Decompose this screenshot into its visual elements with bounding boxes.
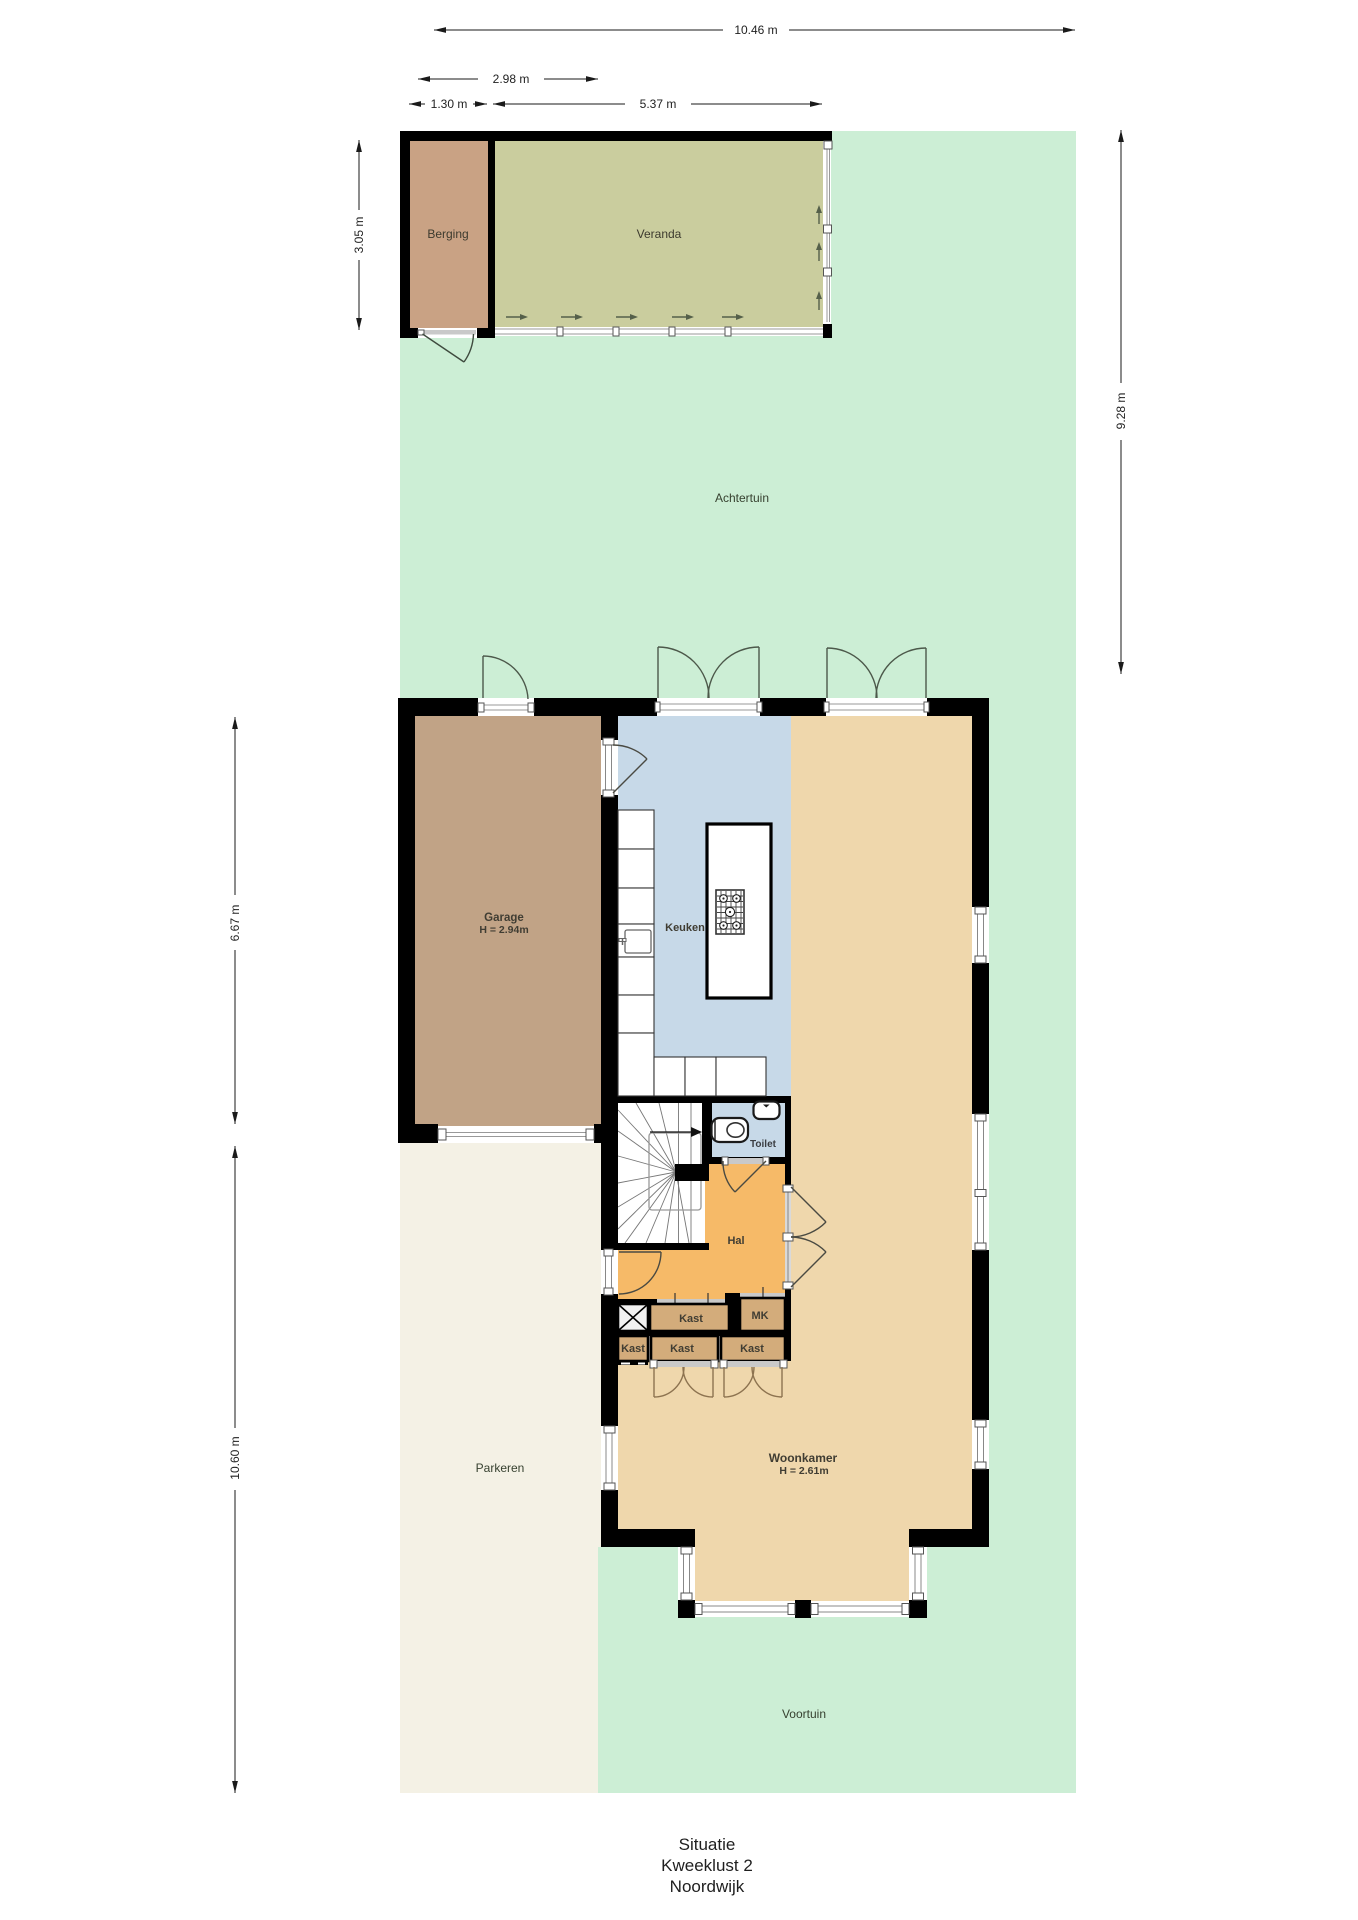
svg-text:9.28 m: 9.28 m	[1114, 393, 1128, 430]
svg-text:Woonkamer: Woonkamer	[769, 1451, 838, 1465]
svg-text:Situatie: Situatie	[679, 1835, 736, 1854]
svg-text:Kast: Kast	[679, 1313, 703, 1325]
svg-text:H = 2.94m: H = 2.94m	[479, 924, 528, 936]
svg-text:Kast: Kast	[621, 1343, 645, 1355]
svg-text:Voortuin: Voortuin	[782, 1707, 826, 1721]
svg-text:10.46 m: 10.46 m	[734, 23, 777, 37]
svg-text:6.67 m: 6.67 m	[228, 905, 242, 942]
svg-text:Garage: Garage	[484, 912, 524, 924]
svg-text:Parkeren: Parkeren	[476, 1461, 525, 1475]
svg-text:H = 2.61m: H = 2.61m	[779, 1465, 828, 1477]
svg-text:Hal: Hal	[727, 1235, 744, 1247]
svg-text:Kast: Kast	[670, 1343, 694, 1355]
svg-text:10.60 m: 10.60 m	[228, 1436, 242, 1479]
svg-text:1.30 m: 1.30 m	[431, 97, 468, 111]
svg-text:Berging: Berging	[427, 227, 468, 241]
svg-text:2.98 m: 2.98 m	[493, 72, 530, 86]
svg-text:Keuken: Keuken	[665, 922, 705, 934]
svg-text:MK: MK	[751, 1310, 768, 1322]
svg-text:Kast: Kast	[740, 1343, 764, 1355]
svg-text:Noordwijk: Noordwijk	[670, 1877, 745, 1896]
svg-text:3.05 m: 3.05 m	[352, 217, 366, 254]
svg-text:Toilet: Toilet	[750, 1139, 777, 1150]
svg-text:Kweeklust 2: Kweeklust 2	[661, 1856, 753, 1875]
svg-text:Veranda: Veranda	[637, 227, 682, 241]
svg-text:5.37 m: 5.37 m	[640, 97, 677, 111]
svg-text:Achtertuin: Achtertuin	[715, 491, 769, 505]
